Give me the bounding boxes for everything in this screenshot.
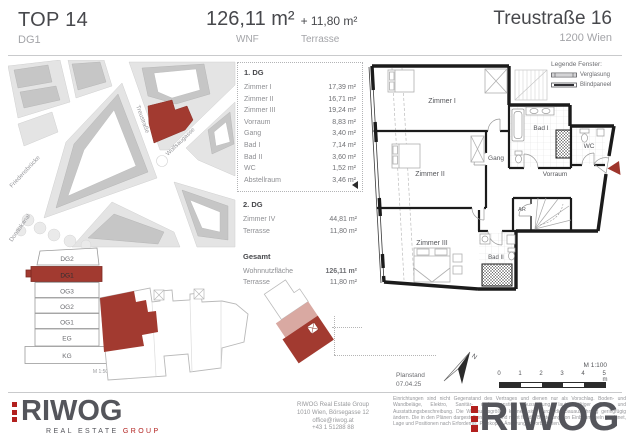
room-table: 1. DG Zimmer I17,39 m² Zimmer II16,71 m²…	[237, 62, 363, 289]
room-label: Zimmer I	[244, 82, 272, 94]
stack-label-highlighted: DG1	[60, 273, 74, 280]
glazing-symbol-icon	[551, 71, 577, 79]
room-label: Zimmer IV	[243, 214, 275, 226]
stack-label: OG1	[60, 320, 74, 327]
room-area: 44,81 m²	[329, 214, 357, 226]
room-label-ar: AR	[518, 207, 526, 213]
floorplan-sheet: TOP 14 DG1 126,11 m² + 11,80 m² WNF Terr…	[0, 0, 630, 445]
stack-label: EG	[62, 336, 71, 343]
room-label-zimmer2: Zimmer II	[415, 171, 445, 178]
dotted-frame-bottom	[334, 355, 436, 356]
table-row: Zimmer I17,39 m²	[244, 82, 356, 94]
room-area: 16,71 m²	[328, 94, 356, 106]
scale-tick: 4	[581, 371, 584, 377]
room-label-gang: Gang	[488, 155, 504, 162]
room-label-vorraum: Vorraum	[543, 171, 568, 178]
table-row: Zimmer IV44,81 m²	[243, 214, 357, 226]
shaft	[482, 264, 512, 286]
table-row: Terrasse11,80 m²	[243, 277, 357, 289]
terrace-area: 11,80 m²	[330, 277, 357, 289]
stack-label: OG3	[60, 289, 74, 296]
unit-level: DG1	[18, 34, 88, 46]
area-terrace-label: Terrasse	[301, 34, 339, 45]
legend-title: Legende Fenster:	[551, 61, 627, 68]
room-label: WC	[244, 163, 256, 175]
blind-panel-symbol-icon	[551, 81, 577, 89]
legend-blind-label: Blindpaneel	[580, 82, 611, 88]
room-area: 3,40 m²	[332, 128, 356, 140]
shaft	[556, 130, 571, 158]
stair-cores	[154, 289, 204, 300]
watermark-squares-icon	[471, 396, 478, 438]
room-area: 17,39 m²	[328, 82, 356, 94]
room-label: Vorraum	[244, 117, 270, 129]
floor-plan-drawing: Zimmer I Zimmer II Zimmer III Gang Bad I…	[368, 58, 628, 348]
room-area: 7,14 m²	[332, 140, 356, 152]
section-lines	[392, 68, 414, 280]
planstand-date: 07.04.25	[396, 380, 425, 389]
entrance-arrow-icon	[608, 161, 621, 175]
header-divider	[8, 55, 622, 56]
header-address: Treustraße 16 1200 Wien	[493, 8, 612, 44]
logo-subtitle: REAL ESTATE GROUP	[46, 428, 161, 435]
stack-label: KG	[62, 353, 71, 360]
facade-glazing	[369, 66, 384, 283]
scale-tick: 1	[518, 371, 521, 377]
total-area: 126,11 m²	[325, 266, 357, 278]
room-label: Zimmer II	[244, 94, 274, 106]
winder-stair	[535, 198, 571, 229]
section-title: 1. DG	[244, 68, 356, 77]
table-row: Bad II3,60 m²	[244, 152, 356, 164]
room-table-section-2dg: 2. DG Zimmer IV44,81 m² Terrasse11,80 m²	[237, 200, 363, 237]
address-line: 1010 Wien, Börsegasse 12	[276, 410, 390, 418]
logo-squares-icon	[12, 402, 17, 422]
area-terrace: + 11,80 m²	[301, 14, 358, 28]
scale-tick: 2	[539, 371, 542, 377]
room-label: Bad II	[244, 152, 262, 164]
scale-segments	[499, 382, 606, 388]
site-map: Treustraße Wolfsaugasse Friedensbrücke D…	[8, 60, 236, 248]
terrace-label: Terrasse	[243, 277, 270, 289]
north-label: N	[470, 353, 478, 362]
logo-subtitle-group: GROUP	[123, 428, 161, 435]
table-row: WC1,52 m²	[244, 163, 356, 175]
room-label-bad1: Bad I	[533, 125, 548, 132]
total-label: Wohnnutzfläche	[243, 266, 293, 278]
room-label-wc: WC	[584, 143, 595, 150]
legend-glazing-label: Verglasung	[580, 72, 610, 78]
table-row: Terrasse11,80 m²	[243, 226, 357, 238]
communal-stairs	[515, 70, 547, 100]
room-table-section-total: Gesamt Wohnnutzfläche126,11 m² Terrasse1…	[237, 252, 363, 289]
table-row: Abstellraum3,46 m²	[244, 175, 356, 187]
table-row: Gang3,40 m²	[244, 128, 356, 140]
table-row: Bad I7,14 m²	[244, 140, 356, 152]
table-row: Zimmer III19,24 m²	[244, 105, 356, 117]
scale-ticks: 0 1 2 3 4 5 m	[497, 371, 609, 379]
room-label: Zimmer III	[244, 105, 276, 117]
logo-subtitle-realestate: REAL ESTATE	[46, 428, 123, 435]
footer-divider	[8, 392, 622, 393]
planstand: Planstand 07.04.25	[396, 371, 425, 389]
room-label-zimmer1: Zimmer I	[428, 98, 456, 105]
planstand-label: Planstand	[396, 371, 425, 380]
area-total: 126,11 m²	[206, 8, 295, 31]
dotted-frame-side	[334, 316, 335, 355]
room-label-zimmer3: Zimmer III	[416, 240, 448, 247]
room-label: Abstellraum	[244, 175, 281, 187]
room-table-section-1dg: 1. DG Zimmer I17,39 m² Zimmer II16,71 m²…	[237, 62, 363, 192]
table-row: Zimmer II16,71 m²	[244, 94, 356, 106]
address-phone: +43 1 51288 88	[276, 425, 390, 433]
key-plan	[94, 276, 262, 384]
watermark-wordmark: RIWOG	[480, 396, 620, 438]
room-label-bad2: Bad II	[488, 255, 504, 261]
section-title: Gesamt	[243, 252, 357, 261]
window-legend: Legende Fenster: Verglasung Blindpaneel	[551, 61, 627, 89]
room-label: Gang	[244, 128, 261, 140]
table-row: Vorraum8,83 m²	[244, 117, 356, 129]
room-area: 3,60 m²	[332, 152, 356, 164]
stack-label: OG2	[60, 304, 74, 311]
area-total-label: WNF	[236, 34, 259, 45]
address-city: 1200 Wien	[493, 32, 612, 44]
stack-label: DG2	[60, 256, 74, 263]
leader-line	[332, 327, 362, 328]
scale-tick: 3	[560, 371, 563, 377]
section-title: 2. DG	[243, 200, 357, 209]
room-area: 8,83 m²	[332, 117, 356, 129]
logo-wordmark: RIWOG	[21, 395, 123, 428]
room-area: 11,80 m²	[330, 226, 357, 238]
address-email: office@riwog.at	[276, 418, 390, 426]
room-label: Terrasse	[243, 226, 270, 238]
room-area: 19,24 m²	[328, 105, 356, 117]
scale-bar: M 1:100 0 1 2 3 4 5 m	[497, 362, 609, 392]
reference-arrow-icon	[352, 181, 358, 189]
intersection	[157, 156, 168, 167]
room-area: 1,52 m²	[332, 163, 356, 175]
table-row: Wohnnutzfläche126,11 m²	[243, 266, 357, 278]
riwog-watermark: RIWOG	[471, 396, 619, 438]
header-area: 126,11 m² + 11,80 m² WNF Terrasse	[206, 8, 386, 46]
company-address: RIWOG Real Estate Group 1010 Wien, Börse…	[276, 402, 390, 433]
address-street: Treustraße 16	[493, 8, 612, 30]
room-label: Bad I	[244, 140, 260, 152]
header-left: TOP 14 DG1	[18, 9, 88, 46]
scale-label: M 1:100	[584, 362, 608, 369]
scale-tick: 0	[497, 371, 500, 377]
north-arrow-icon: N	[436, 348, 478, 390]
unit-title: TOP 14	[18, 9, 88, 32]
address-line: RIWOG Real Estate Group	[276, 402, 390, 410]
upper-level-key-plan	[256, 272, 338, 384]
